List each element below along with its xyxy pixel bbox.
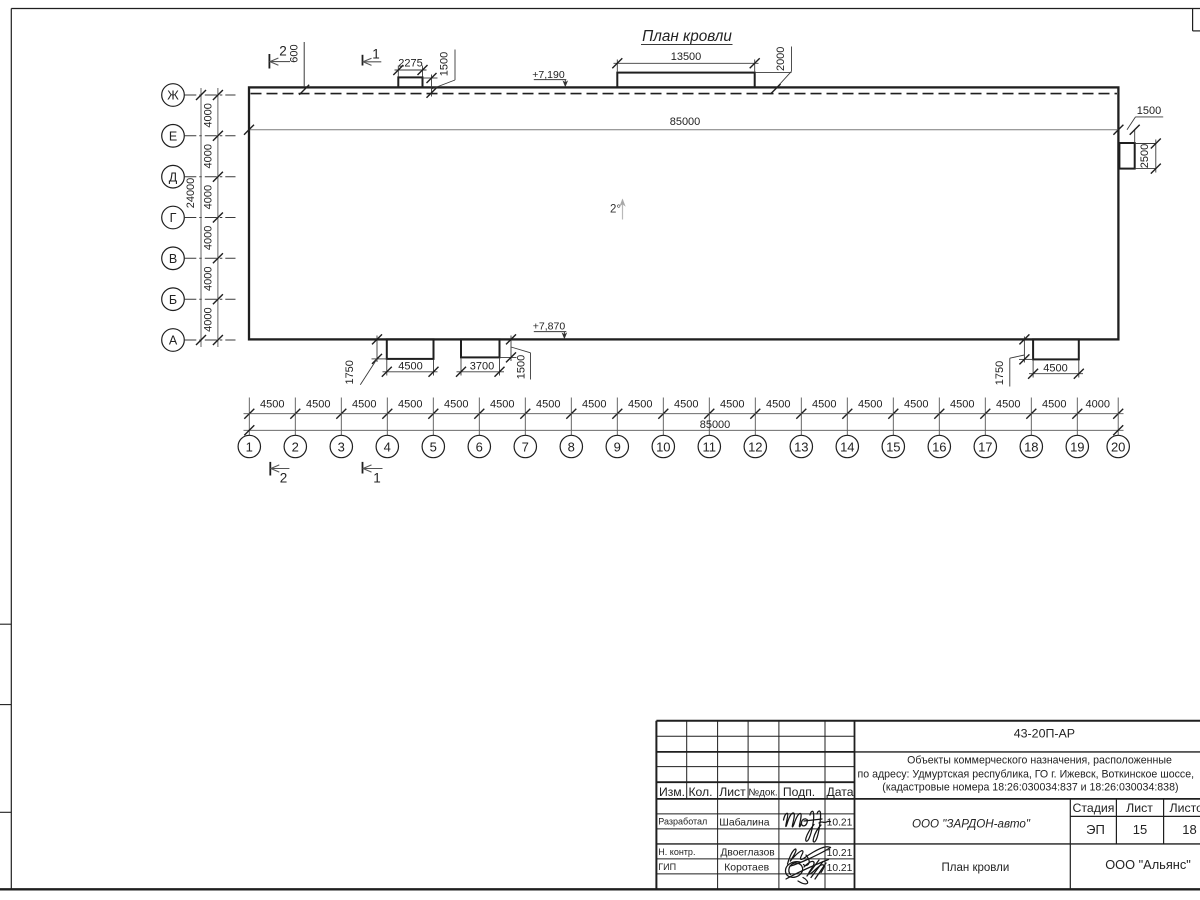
svg-text:4000: 4000 <box>203 307 215 331</box>
svg-text:(кадастровые номера 18:26:0300: (кадастровые номера 18:26:030034:837 и 1… <box>882 781 1178 793</box>
svg-text:Д: Д <box>169 170 178 184</box>
svg-text:4500: 4500 <box>444 399 468 411</box>
svg-text:+7,870: +7,870 <box>533 321 566 333</box>
svg-text:1: 1 <box>372 47 380 62</box>
svg-text:1750: 1750 <box>344 360 356 384</box>
svg-text:Дата: Дата <box>827 785 854 799</box>
svg-text:7: 7 <box>522 439 529 454</box>
svg-text:4000: 4000 <box>203 103 215 127</box>
svg-text:15: 15 <box>1133 822 1147 837</box>
svg-text:План кровли: План кровли <box>942 862 1010 874</box>
svg-text:15: 15 <box>886 439 900 454</box>
svg-text:Стадия: Стадия <box>1073 801 1115 815</box>
svg-text:20: 20 <box>1111 439 1125 454</box>
svg-text:9: 9 <box>614 439 621 454</box>
svg-text:10.21: 10.21 <box>827 818 853 829</box>
svg-text:4500: 4500 <box>720 399 744 411</box>
svg-text:№док.: №док. <box>748 787 777 798</box>
svg-text:ООО "ЗАРДОН-авто": ООО "ЗАРДОН-авто" <box>912 817 1031 830</box>
svg-text:2°: 2° <box>610 204 621 216</box>
svg-text:3: 3 <box>338 439 345 454</box>
svg-text:План кровли: План кровли <box>642 28 732 45</box>
svg-text:4500: 4500 <box>398 361 422 373</box>
svg-text:по адресу: Удмуртская республи: по адресу: Удмуртская республика, ГО г. … <box>858 768 1195 780</box>
svg-text:Б: Б <box>169 293 177 307</box>
svg-text:1: 1 <box>246 439 253 454</box>
svg-text:Листов: Листов <box>1170 801 1200 815</box>
svg-text:Двоеглазов: Двоеглазов <box>721 847 775 858</box>
svg-text:6: 6 <box>476 439 483 454</box>
svg-text:85000: 85000 <box>670 116 701 128</box>
svg-text:Н. контр.: Н. контр. <box>658 847 695 857</box>
svg-text:10.21: 10.21 <box>827 863 853 874</box>
svg-text:4000: 4000 <box>1086 399 1110 411</box>
svg-text:4500: 4500 <box>858 399 882 411</box>
svg-text:Е: Е <box>169 129 177 143</box>
svg-text:4500: 4500 <box>352 399 376 411</box>
svg-text:1500: 1500 <box>1137 105 1161 117</box>
svg-text:600: 600 <box>288 44 300 62</box>
svg-text:ЭП: ЭП <box>1086 822 1105 837</box>
svg-text:1: 1 <box>373 471 381 486</box>
svg-text:Лист: Лист <box>719 785 746 799</box>
svg-text:4000: 4000 <box>203 267 215 291</box>
svg-text:4500: 4500 <box>812 399 836 411</box>
svg-text:1500: 1500 <box>515 355 527 379</box>
svg-text:17: 17 <box>978 439 992 454</box>
svg-text:ГИП: ГИП <box>658 862 676 872</box>
svg-text:24000: 24000 <box>185 178 197 209</box>
svg-text:Ж: Ж <box>167 89 179 103</box>
svg-text:4000: 4000 <box>203 226 215 250</box>
svg-text:1750: 1750 <box>994 361 1006 385</box>
svg-text:85000: 85000 <box>700 419 731 431</box>
svg-text:16: 16 <box>932 439 946 454</box>
svg-text:2: 2 <box>279 44 287 59</box>
svg-text:2000: 2000 <box>775 47 787 71</box>
svg-text:4500: 4500 <box>996 399 1020 411</box>
svg-text:Шабалина: Шабалина <box>719 817 769 829</box>
svg-text:4: 4 <box>384 439 391 454</box>
svg-text:ООО "Альянс": ООО "Альянс" <box>1105 857 1191 872</box>
svg-text:10.21: 10.21 <box>827 848 853 859</box>
svg-text:10: 10 <box>656 439 670 454</box>
svg-text:18: 18 <box>1024 439 1038 454</box>
svg-text:2500: 2500 <box>1139 144 1151 168</box>
svg-text:В: В <box>169 252 177 266</box>
svg-text:12: 12 <box>748 439 762 454</box>
svg-text:4000: 4000 <box>203 185 215 209</box>
svg-text:11: 11 <box>703 439 717 454</box>
svg-text:2275: 2275 <box>398 57 422 69</box>
svg-text:4500: 4500 <box>766 399 790 411</box>
svg-text:А: А <box>169 334 178 348</box>
svg-text:+7,190: +7,190 <box>532 69 565 81</box>
svg-text:Изм.: Изм. <box>659 785 685 799</box>
svg-text:4500: 4500 <box>260 399 284 411</box>
svg-text:4500: 4500 <box>674 399 698 411</box>
svg-text:4500: 4500 <box>398 399 422 411</box>
svg-text:Подп.: Подп. <box>783 785 815 799</box>
svg-text:Лист: Лист <box>1126 801 1153 815</box>
svg-text:4500: 4500 <box>582 399 606 411</box>
svg-text:5: 5 <box>430 439 437 454</box>
svg-text:3700: 3700 <box>470 361 494 373</box>
svg-text:4500: 4500 <box>1043 362 1067 374</box>
svg-text:4500: 4500 <box>306 399 330 411</box>
svg-text:4500: 4500 <box>536 399 560 411</box>
svg-text:4000: 4000 <box>203 144 215 168</box>
svg-text:Объекты коммерческого назначен: Объекты коммерческого назначения, распол… <box>907 755 1172 767</box>
svg-text:4500: 4500 <box>490 399 514 411</box>
svg-text:4500: 4500 <box>1042 399 1066 411</box>
svg-text:13500: 13500 <box>671 51 702 63</box>
svg-text:Коротаев: Коротаев <box>724 862 769 873</box>
svg-text:4500: 4500 <box>950 399 974 411</box>
svg-text:14: 14 <box>840 439 854 454</box>
svg-text:1500: 1500 <box>439 52 451 76</box>
svg-text:2: 2 <box>292 439 299 454</box>
svg-text:Разработал: Разработал <box>658 817 707 827</box>
svg-text:4500: 4500 <box>904 399 928 411</box>
svg-text:13: 13 <box>794 439 808 454</box>
svg-text:Г: Г <box>170 211 177 225</box>
svg-text:Кол.: Кол. <box>688 785 712 799</box>
svg-text:8: 8 <box>568 439 575 454</box>
svg-text:43-20П-АР: 43-20П-АР <box>1014 726 1075 740</box>
svg-text:2: 2 <box>280 471 288 486</box>
svg-text:4500: 4500 <box>628 399 652 411</box>
svg-text:18: 18 <box>1182 822 1196 837</box>
svg-text:19: 19 <box>1070 439 1084 454</box>
